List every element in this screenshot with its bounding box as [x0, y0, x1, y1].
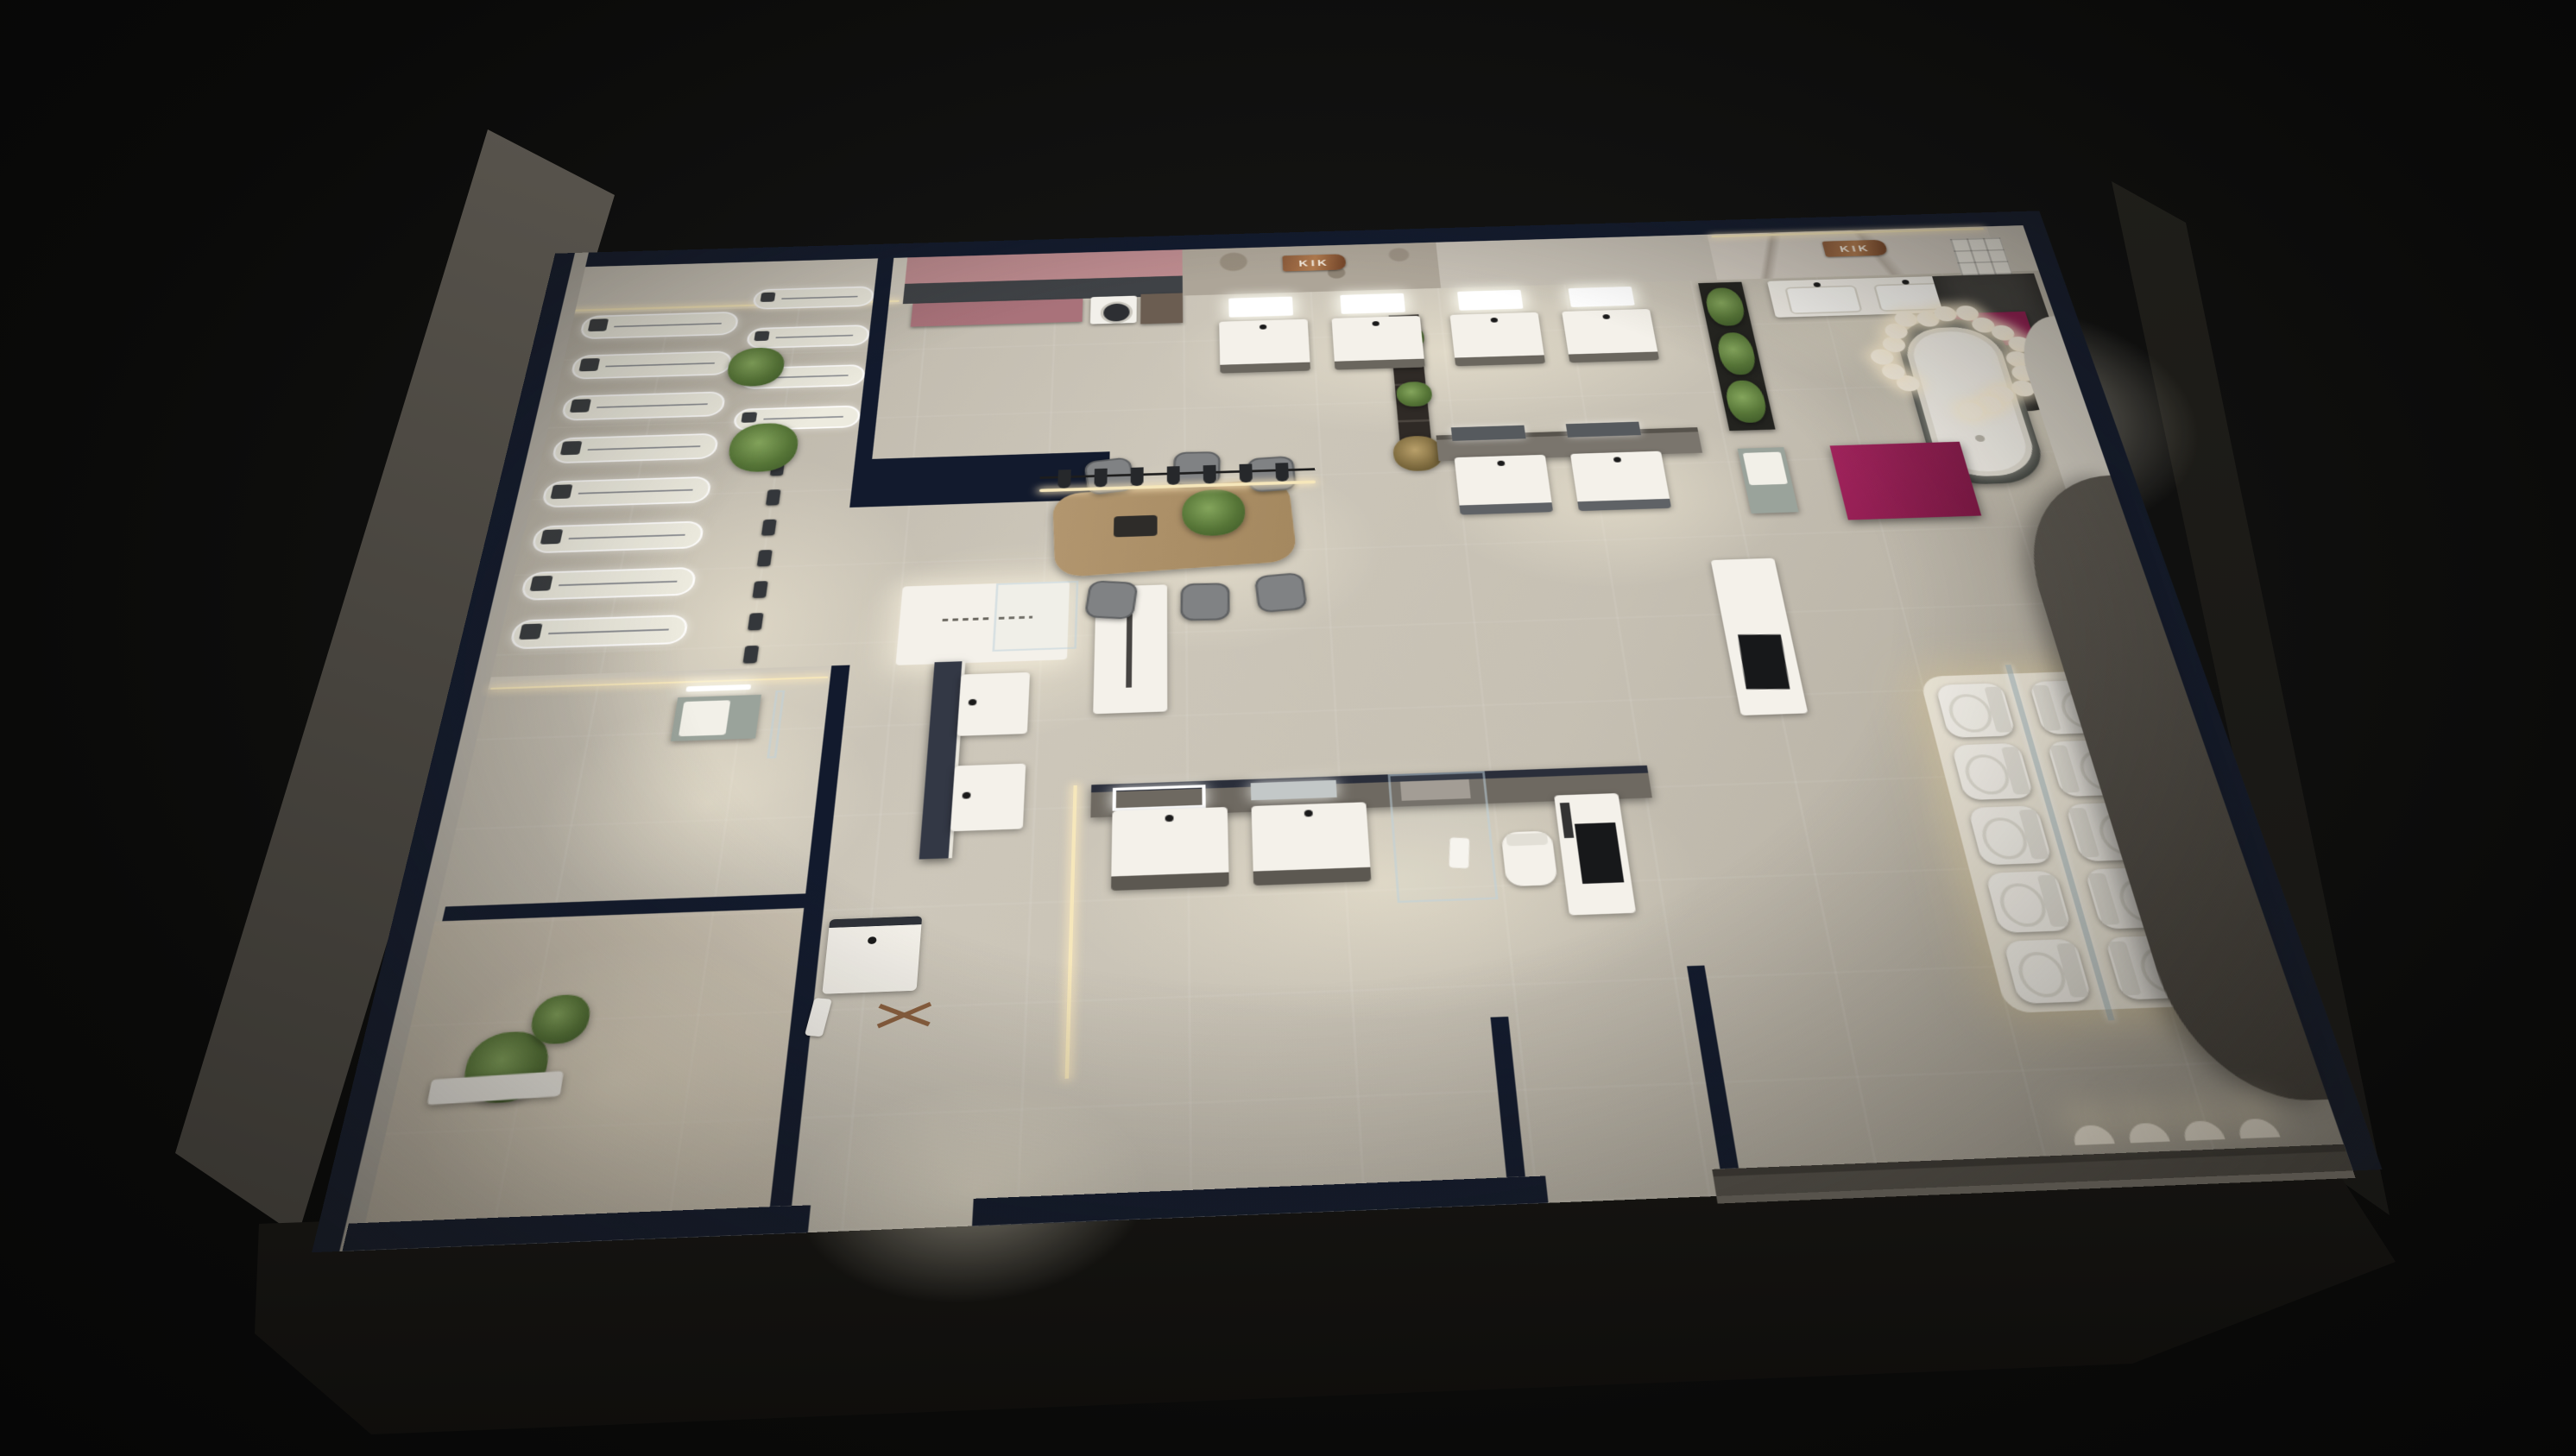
floor-vignette	[312, 211, 2382, 1252]
floorplan: KIK KIK	[312, 211, 2382, 1252]
showroom-3d-render: KIK KIK	[0, 0, 2576, 1456]
